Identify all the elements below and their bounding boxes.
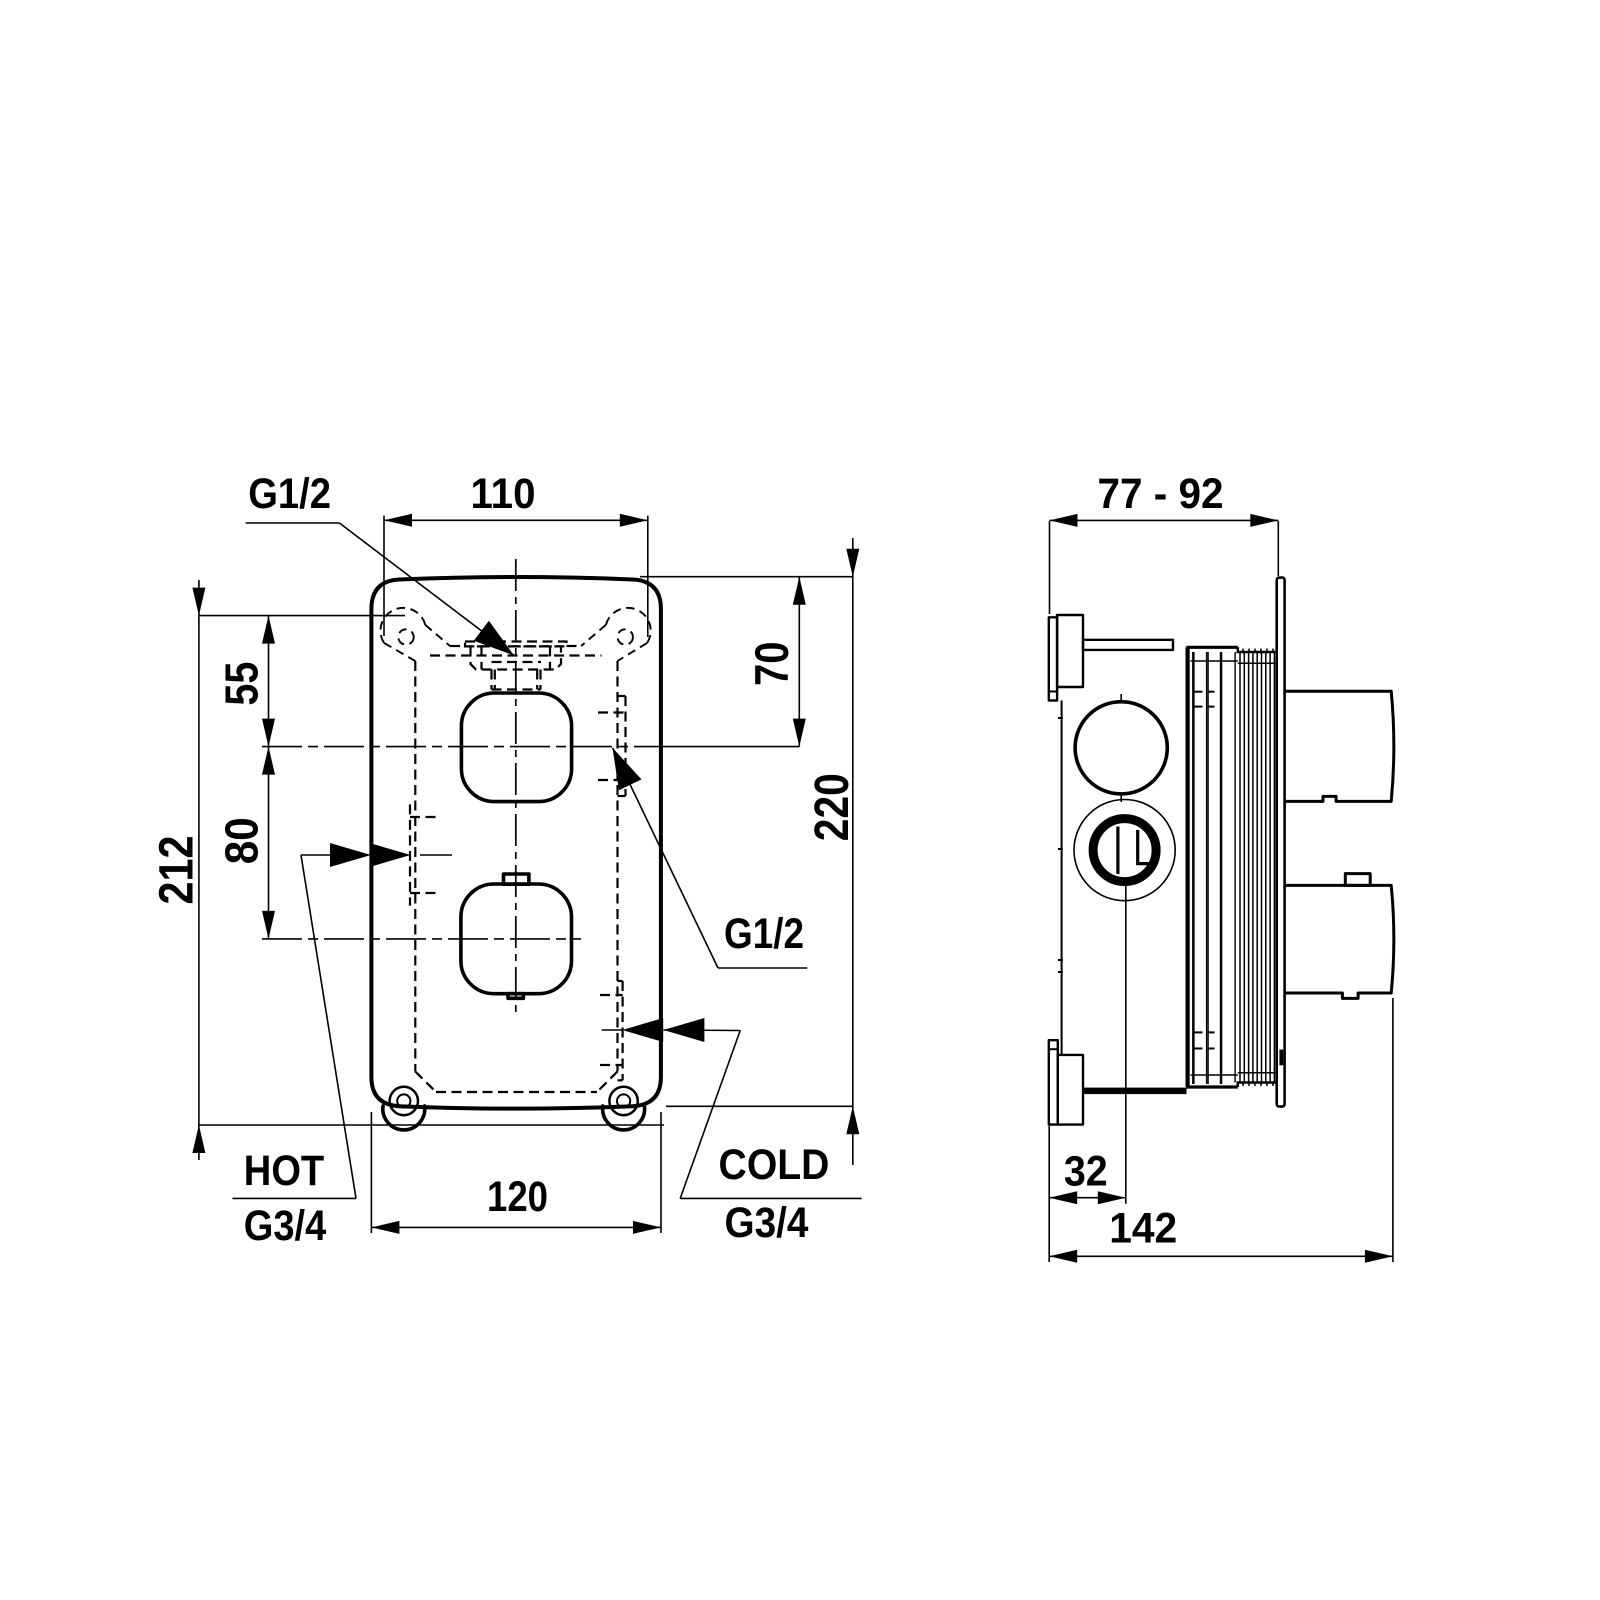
svg-text:55: 55	[216, 662, 268, 706]
svg-text:G3/4: G3/4	[244, 1202, 327, 1250]
svg-text:COLD: COLD	[719, 1141, 830, 1189]
svg-text:120: 120	[487, 1173, 548, 1221]
svg-text:70: 70	[745, 641, 798, 686]
svg-text:G1/2: G1/2	[248, 470, 331, 518]
svg-text:HOT: HOT	[244, 1147, 324, 1195]
svg-text:80: 80	[216, 817, 268, 864]
svg-text:142: 142	[1109, 1204, 1177, 1252]
svg-text:G3/4: G3/4	[725, 1199, 809, 1247]
svg-text:32: 32	[1064, 1147, 1108, 1195]
svg-text:220: 220	[806, 773, 859, 841]
svg-text:77 - 92: 77 - 92	[1098, 470, 1224, 518]
svg-text:212: 212	[151, 836, 204, 905]
svg-text:110: 110	[471, 470, 536, 518]
svg-text:G1/2: G1/2	[724, 910, 804, 958]
